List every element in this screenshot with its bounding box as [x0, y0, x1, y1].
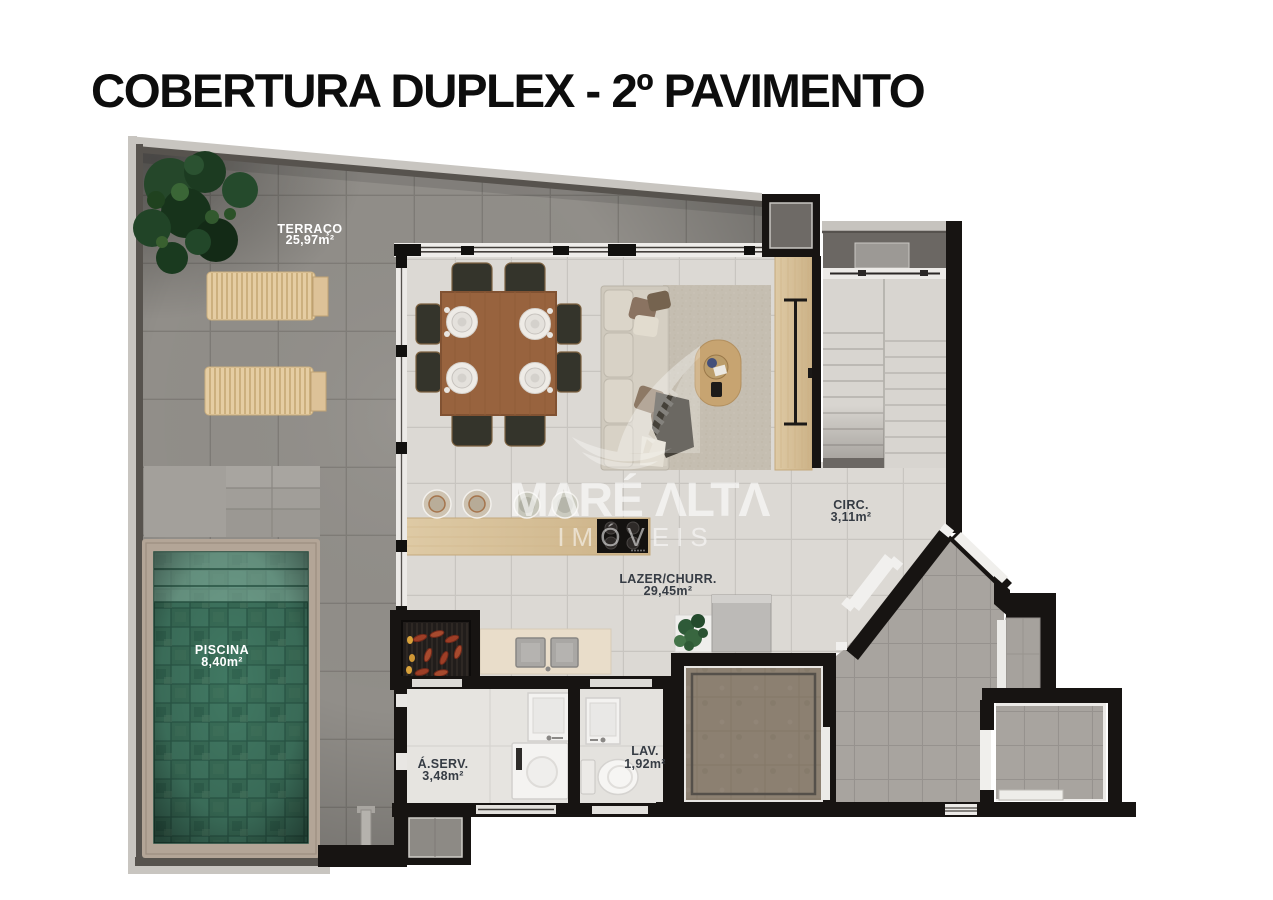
svg-text:COBERTURA DUPLEX - 2º PAVIMENT: COBERTURA DUPLEX - 2º PAVIMENTO — [91, 65, 924, 118]
svg-text:IMÓVEIS: IMÓVEIS — [557, 522, 714, 552]
svg-text:8,40m²: 8,40m² — [201, 655, 242, 669]
svg-text:MΛRÉ ΛLTΛ: MΛRÉ ΛLTΛ — [509, 473, 771, 527]
svg-text:1,92m²: 1,92m² — [624, 757, 665, 771]
svg-text:25,97m²: 25,97m² — [286, 233, 335, 247]
svg-text:3,48m²: 3,48m² — [422, 769, 463, 783]
svg-text:3,11m²: 3,11m² — [831, 510, 872, 524]
svg-text:29,45m²: 29,45m² — [644, 584, 693, 598]
svg-text:LAV.: LAV. — [631, 744, 659, 758]
